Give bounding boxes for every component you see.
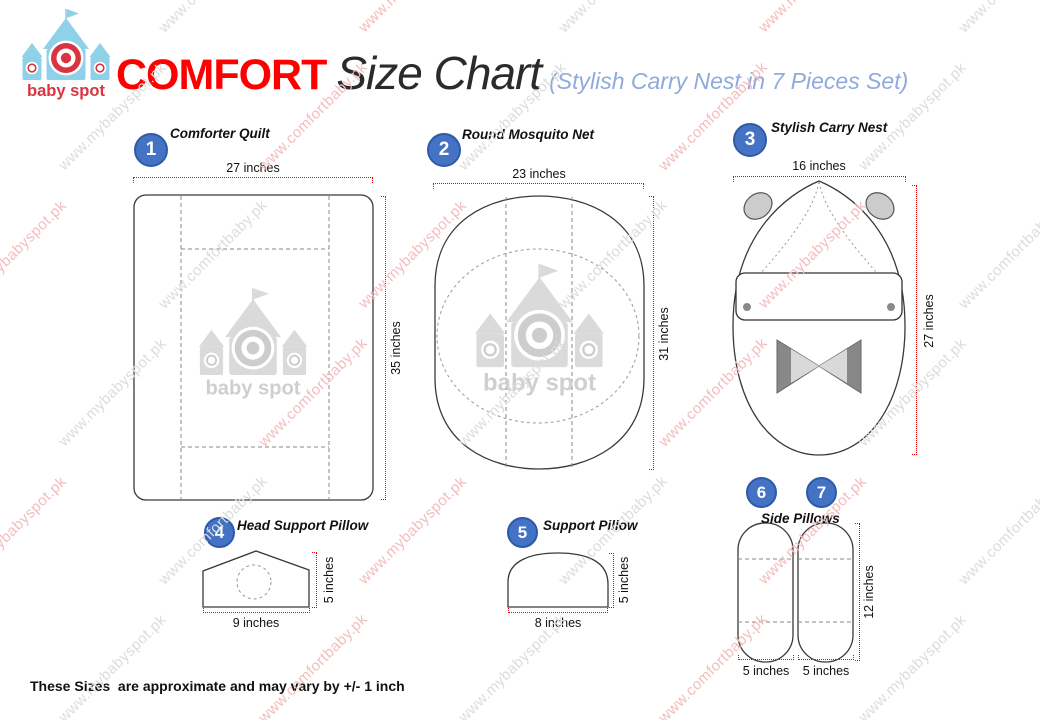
item-2-label: Round Mosquito Net	[462, 127, 594, 142]
svg-text:baby spot: baby spot	[483, 369, 596, 396]
item-7-badge: 7	[806, 477, 837, 508]
item-4-label: Head Support Pillow	[237, 518, 368, 533]
item-5-label: Support Pillow	[543, 518, 638, 533]
item-4-badge: 4	[204, 517, 235, 548]
nest-snap-right	[887, 303, 895, 311]
item-3-badge: 3	[733, 123, 767, 157]
page-title-text: Size Chart	[336, 46, 541, 100]
item-3-label: Stylish Carry Nest	[771, 120, 887, 135]
watermark-text: www.comfortbaby.pk	[955, 197, 1040, 312]
side-pillows-sketch	[735, 520, 857, 665]
item-3-height-label: 27 inches	[922, 286, 936, 356]
item-1-width-dimension	[133, 177, 373, 178]
item-5-width-dimension	[508, 612, 608, 613]
item-2-badge: 2	[427, 133, 461, 167]
item-1-height-label: 35 inches	[389, 313, 403, 383]
item-3-number: 3	[745, 129, 756, 151]
item-6-number: 6	[757, 483, 766, 503]
watermark-text: www.comfortbaby.pk	[155, 0, 270, 36]
item-2-width-label: 23 inches	[479, 167, 599, 181]
item-3-width-dimension	[733, 176, 906, 177]
carry-nest-sketch	[728, 178, 928, 463]
footnote: These Sizes are approximate and may vary…	[30, 678, 405, 694]
item-1-label: Comforter Quilt	[170, 126, 270, 141]
item-2-number: 2	[439, 139, 450, 161]
side-pillow-1-outline	[738, 523, 793, 662]
watermark-text: www.mybabyspot.pk	[355, 0, 470, 36]
page-subtitle: (Stylish Carry Nest in 7 Pieces Set)	[549, 68, 908, 95]
item-2-height-dimension	[653, 196, 654, 470]
side-pillows-height-label: 12 inches	[862, 557, 876, 627]
side-pillows-label: Side Pillows	[761, 511, 840, 526]
nest-snap-left	[743, 303, 751, 311]
quilt-watermark-logo: baby spot	[192, 283, 314, 401]
item-4-height-dimension	[316, 552, 317, 608]
item-7-number: 7	[817, 483, 826, 503]
item-4-number: 4	[215, 523, 224, 543]
watermark-text: www.comfortbaby.pk	[955, 473, 1040, 588]
side-pillows-height-dimension	[859, 523, 860, 661]
item-5-number: 5	[518, 523, 527, 543]
item-6-badge: 6	[746, 477, 777, 508]
item-1-badge: 1	[134, 133, 168, 167]
support-pillow-sketch	[505, 550, 611, 610]
side-pillow-2-width-label: 5 inches	[796, 664, 856, 678]
item-5-badge: 5	[507, 517, 538, 548]
item-1-width-label: 27 inches	[193, 161, 313, 175]
side-pillow-1-width-label: 5 inches	[736, 664, 796, 678]
watermark-text: www.mybabyspot.pk	[855, 611, 970, 720]
watermark-text: www.comfortbaby.pk	[955, 0, 1040, 36]
side-pillow-2-width-dimension	[798, 659, 854, 660]
size-chart-page: baby spot COMFORT Size Chart (Stylish Ca…	[0, 0, 1040, 720]
item-1-number: 1	[146, 139, 157, 161]
svg-text:baby spot: baby spot	[205, 377, 300, 399]
watermark-text: www.comfortbaby.pk	[555, 0, 670, 36]
item-3-height-dimension	[916, 185, 917, 455]
item-4-height-label: 5 inches	[322, 550, 336, 610]
item-5-height-dimension	[613, 553, 614, 608]
brand-name: COMFORT	[116, 51, 326, 100]
item-3-width-label: 16 inches	[759, 159, 879, 173]
head-support-pillow-sketch	[200, 548, 312, 610]
brand-logo: baby spot	[16, 4, 116, 102]
support-pillow-outline	[508, 553, 608, 607]
net-watermark-logo: baby spot	[467, 258, 612, 398]
item-2-height-label: 31 inches	[657, 299, 671, 369]
item-2-width-dimension	[433, 183, 644, 184]
page-title: COMFORT Size Chart (Stylish Carry Nest i…	[116, 46, 908, 100]
watermark-text: www.mybabyspot.pk	[0, 197, 70, 312]
item-4-width-label: 9 inches	[196, 616, 316, 630]
side-pillow-2-outline	[798, 523, 853, 662]
side-pillow-1-width-dimension	[738, 659, 794, 660]
item-5-height-label: 5 inches	[617, 550, 631, 610]
item-4-width-dimension	[203, 612, 310, 613]
nest-band	[736, 273, 902, 320]
watermark-text: www.mybabyspot.pk	[55, 611, 170, 720]
watermark-text: www.mybabyspot.pk	[0, 473, 70, 588]
watermark-text: www.mybabyspot.pk	[755, 0, 870, 36]
item-5-width-label: 8 inches	[498, 616, 618, 630]
item-1-height-dimension	[385, 196, 386, 500]
svg-text:baby spot: baby spot	[27, 82, 105, 100]
